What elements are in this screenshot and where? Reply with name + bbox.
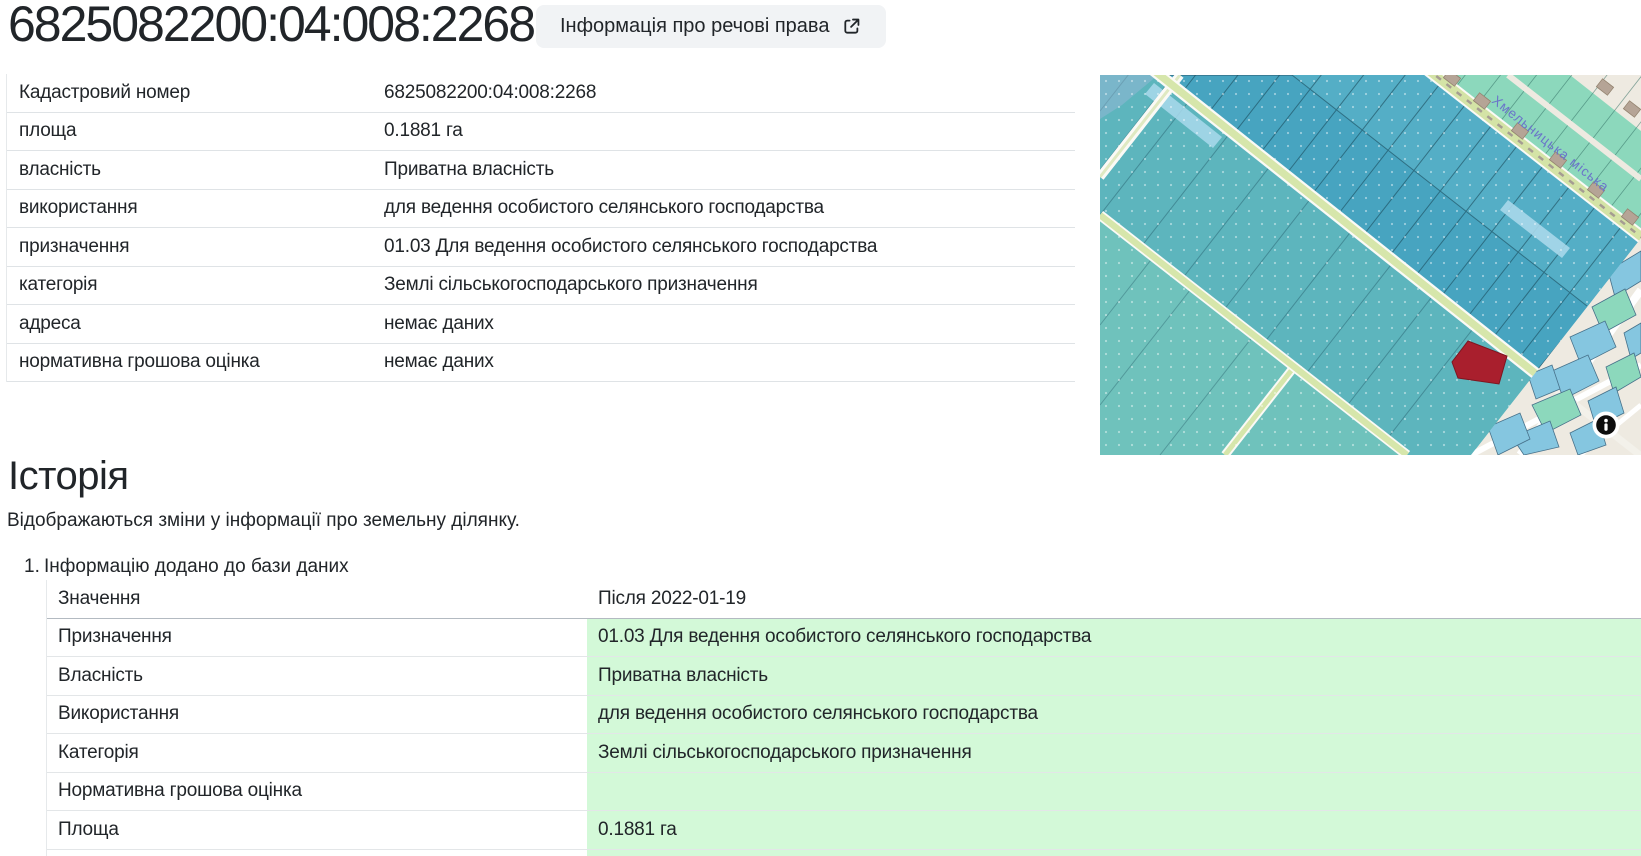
- row-label: власність: [7, 159, 384, 181]
- table-row: площа 0.1881 га: [7, 113, 1075, 152]
- map-info-button[interactable]: [1593, 412, 1620, 439]
- row-label: Кадастровий номер: [7, 82, 384, 104]
- history-row: Категорія Землі сільськогосподарського п…: [47, 734, 1641, 773]
- cadastral-number-title: 6825082200:04:008:2268: [8, 0, 534, 52]
- row-value: немає даних: [384, 351, 1075, 373]
- table-row: власність Приватна власність: [7, 151, 1075, 190]
- history-row: Призначення 01.03 Для ведення особистого…: [47, 619, 1641, 658]
- history-row: Використання для ведення особистого селя…: [47, 696, 1641, 735]
- row-value: для ведення особистого селянського госпо…: [587, 696, 1641, 734]
- row-label: Використання: [47, 696, 587, 734]
- row-value: Землі сільськогосподарського призначення: [587, 734, 1641, 772]
- row-value: Приватна власність: [587, 657, 1641, 695]
- history-title: Історія: [8, 452, 129, 500]
- history-value-header: Значення: [47, 580, 587, 618]
- rights-info-button[interactable]: Інформація про речові права: [536, 5, 886, 48]
- table-row: нормативна грошова оцінка немає даних: [7, 344, 1075, 383]
- history-row: Площа 0.1881 га: [47, 811, 1641, 850]
- row-label: Нормативна грошова оцінка: [47, 773, 587, 811]
- external-link-icon: [841, 16, 862, 37]
- row-value: Приватна власність: [384, 159, 1075, 181]
- row-value: Землі сільськогосподарського призначення: [384, 274, 1075, 296]
- row-value: 0.1881 га: [384, 120, 1075, 142]
- table-row: призначення 01.03 Для ведення особистого…: [7, 228, 1075, 267]
- cadastral-map[interactable]: Хмельницька міська: [1100, 75, 1641, 455]
- history-row: Нормативна грошова оцінка: [47, 773, 1641, 812]
- history-row-cutoff: [47, 850, 1641, 856]
- row-label: використання: [7, 197, 384, 219]
- map-canvas: Хмельницька міська: [1100, 75, 1641, 455]
- table-row: адреса немає даних: [7, 305, 1075, 344]
- history-header-row: Значення Після 2022-01-19: [47, 580, 1641, 619]
- history-date-header: Після 2022-01-19: [587, 580, 1641, 618]
- history-row: Власність Приватна власність: [47, 657, 1641, 696]
- rights-info-button-label: Інформація про речові права: [560, 15, 829, 38]
- row-value: 01.03 Для ведення особистого селянського…: [384, 236, 1075, 258]
- row-value: 6825082200:04:008:2268: [384, 82, 1075, 104]
- row-label: Призначення: [47, 619, 587, 657]
- row-value: для ведення особистого селянського госпо…: [384, 197, 1075, 219]
- table-row: Кадастровий номер 6825082200:04:008:2268: [7, 74, 1075, 113]
- row-label: нормативна грошова оцінка: [7, 351, 384, 373]
- history-table: Значення Після 2022-01-19 Призначення 01…: [46, 580, 1641, 856]
- row-label: призначення: [7, 236, 384, 258]
- table-row: категорія Землі сільськогосподарського п…: [7, 267, 1075, 306]
- row-value: 01.03 Для ведення особистого селянського…: [587, 619, 1641, 657]
- history-entry-title: 1. Інформацію додано до бази даних: [24, 556, 349, 578]
- row-value: немає даних: [384, 313, 1075, 335]
- row-label: площа: [7, 120, 384, 142]
- row-value: [587, 850, 1641, 856]
- row-label: [47, 850, 587, 856]
- history-entry-index: 1.: [24, 556, 44, 578]
- table-row: використання для ведення особистого селя…: [7, 190, 1075, 229]
- row-label: Категорія: [47, 734, 587, 772]
- row-label: категорія: [7, 274, 384, 296]
- row-label: Власність: [47, 657, 587, 695]
- history-entry-label: Інформацію додано до бази даних: [44, 556, 349, 578]
- row-value: 0.1881 га: [587, 811, 1641, 849]
- history-subtitle: Відображаються зміни у інформації про зе…: [7, 510, 520, 532]
- row-value: [587, 773, 1641, 811]
- row-label: адреса: [7, 313, 384, 335]
- page: 6825082200:04:008:2268 Інформація про ре…: [0, 0, 1641, 856]
- parcel-info-table: Кадастровий номер 6825082200:04:008:2268…: [6, 74, 1075, 382]
- row-label: Площа: [47, 811, 587, 849]
